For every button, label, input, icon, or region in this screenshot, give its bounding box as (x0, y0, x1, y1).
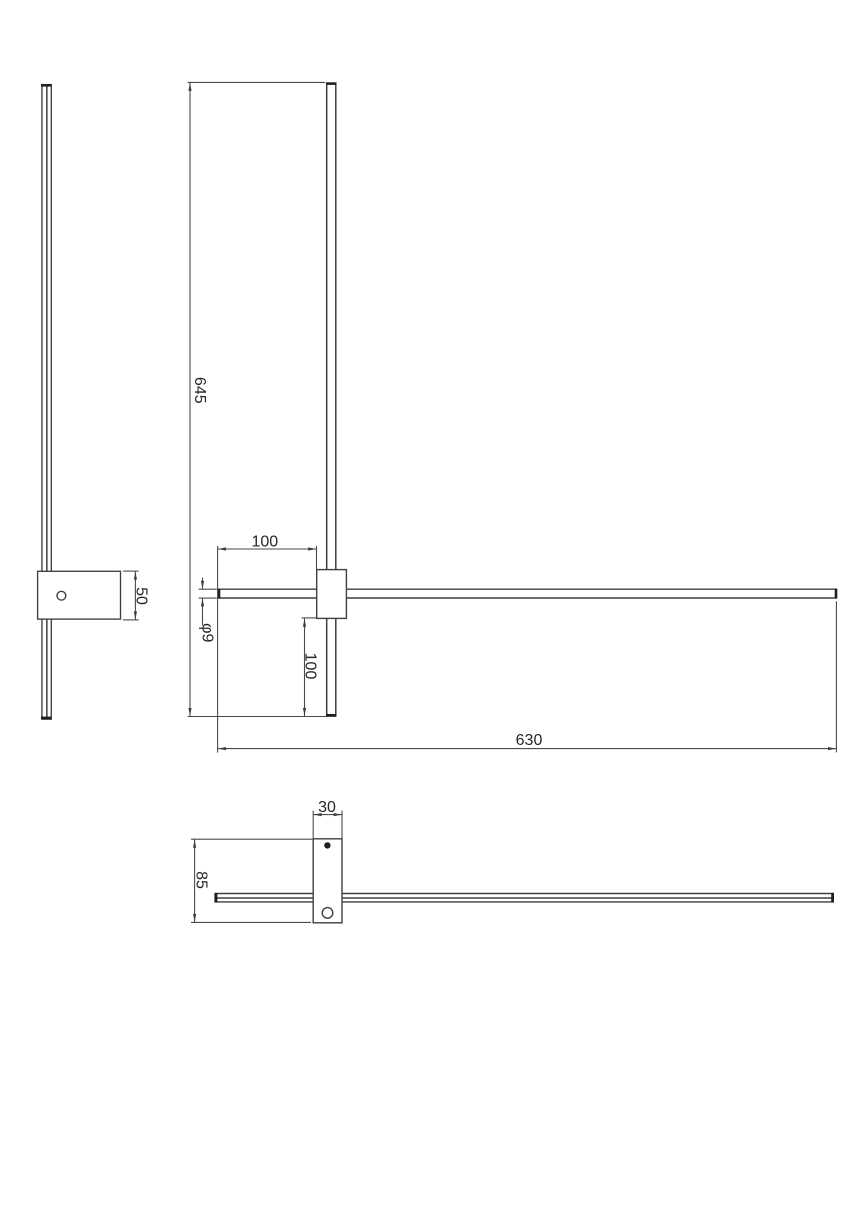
svg-text:30: 30 (318, 799, 336, 816)
svg-text:630: 630 (516, 732, 543, 749)
svg-text:85: 85 (192, 871, 209, 889)
svg-text:645: 645 (191, 377, 208, 404)
svg-text:φ9: φ9 (198, 623, 215, 642)
svg-text:100: 100 (251, 533, 278, 550)
svg-text:100: 100 (301, 653, 318, 680)
svg-text:50: 50 (133, 587, 150, 605)
